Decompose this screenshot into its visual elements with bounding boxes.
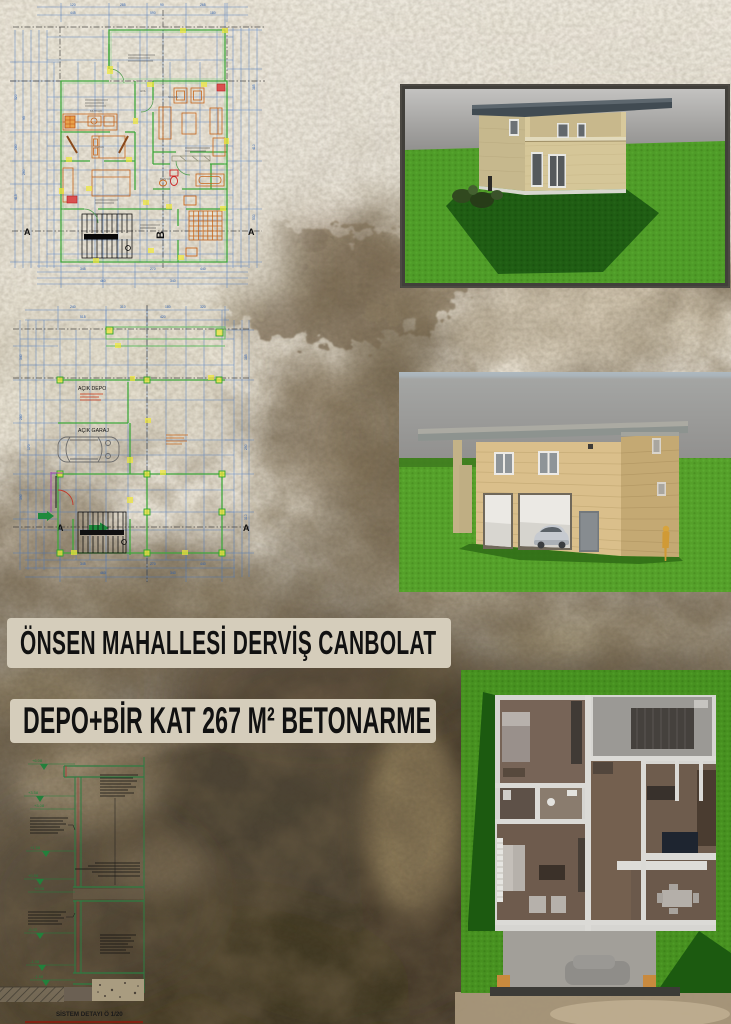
svg-text:440: 440	[200, 267, 206, 271]
svg-text:YATAK: YATAK	[95, 145, 104, 149]
svg-text:390: 390	[19, 494, 23, 500]
svg-text:285: 285	[120, 3, 126, 7]
svg-text:AÇIK DEPO: AÇIK DEPO	[78, 386, 106, 392]
svg-text:A: A	[24, 227, 31, 237]
svg-text:340: 340	[170, 571, 176, 575]
svg-text:530: 530	[252, 214, 256, 220]
svg-text:440: 440	[200, 562, 206, 566]
svg-text:240: 240	[70, 305, 76, 309]
svg-text:290: 290	[244, 444, 248, 450]
svg-text:385: 385	[252, 84, 256, 90]
svg-text:515: 515	[80, 315, 86, 319]
svg-text:410: 410	[252, 144, 256, 150]
svg-text:AÇIK GARAJ: AÇIK GARAJ	[78, 428, 109, 434]
svg-text:SİSTEM DETAYI Ö 1/20: SİSTEM DETAYI Ö 1/20	[56, 1011, 123, 1018]
svg-text:270: 270	[150, 267, 156, 271]
svg-text:260: 260	[22, 169, 26, 175]
svg-text:+3.08: +3.08	[34, 803, 45, 808]
svg-text:B: B	[155, 231, 167, 239]
svg-text:345: 345	[80, 267, 86, 271]
svg-text:+6.08: +6.08	[32, 758, 43, 763]
svg-text:BANYO: BANYO	[160, 177, 171, 181]
svg-text:-0.42: -0.42	[28, 927, 38, 932]
svg-text:+1.58: +1.58	[30, 845, 41, 850]
svg-text:SALON: SALON	[168, 95, 178, 99]
svg-text:95: 95	[22, 116, 26, 120]
svg-text:310: 310	[244, 514, 248, 520]
svg-text:280: 280	[19, 414, 23, 420]
svg-text:345: 345	[80, 562, 86, 566]
svg-text:120: 120	[70, 3, 76, 7]
svg-text:+0.58: +0.58	[28, 873, 39, 878]
svg-text:HOL: HOL	[140, 89, 147, 93]
svg-text:320: 320	[14, 94, 18, 100]
svg-text:415: 415	[14, 194, 18, 200]
svg-text:+0.08: +0.08	[34, 886, 45, 891]
svg-text:445: 445	[70, 11, 76, 15]
svg-text:A: A	[243, 523, 250, 533]
svg-text:+3.58: +3.58	[28, 790, 39, 795]
svg-text:90: 90	[160, 3, 164, 7]
svg-text:420: 420	[160, 315, 166, 319]
svg-text:460: 460	[100, 571, 106, 575]
svg-text:A: A	[248, 227, 255, 237]
svg-text:265: 265	[200, 3, 206, 7]
svg-text:-1.08: -1.08	[30, 959, 40, 964]
svg-text:320: 320	[200, 305, 206, 309]
svg-text:460: 460	[100, 279, 106, 283]
svg-text:340: 340	[19, 354, 23, 360]
svg-text:180: 180	[165, 305, 171, 309]
svg-text:310: 310	[120, 305, 126, 309]
svg-text:270: 270	[150, 562, 156, 566]
svg-text:180: 180	[210, 11, 216, 15]
svg-text:-1.58: -1.58	[34, 974, 44, 979]
svg-text:170: 170	[27, 444, 31, 450]
svg-text:340: 340	[170, 279, 176, 283]
svg-text:590: 590	[150, 11, 156, 15]
svg-text:385: 385	[244, 354, 248, 360]
svg-text:MUTFAK: MUTFAK	[90, 109, 102, 113]
svg-text:280: 280	[14, 144, 18, 150]
